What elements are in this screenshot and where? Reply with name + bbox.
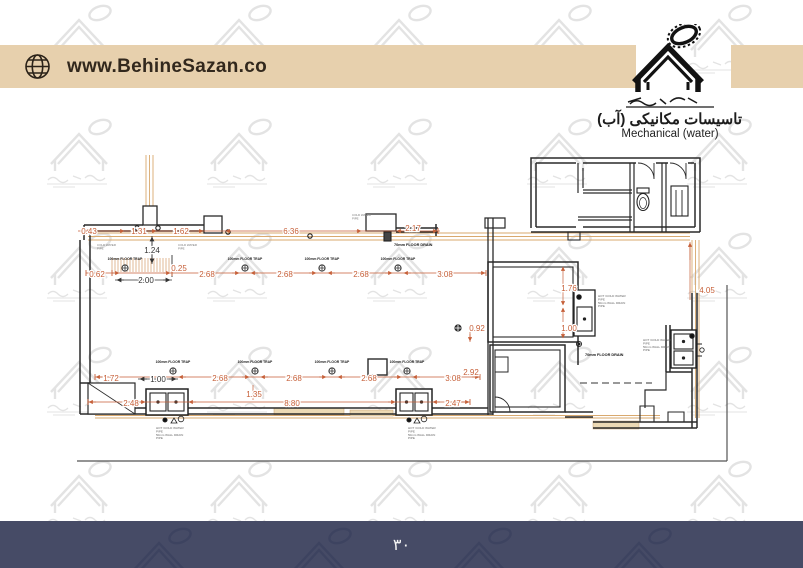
dim: 1.00: [150, 375, 166, 384]
logo-block: تاسیسات مکانیکی (آب) Mechanical (water): [598, 24, 742, 140]
dim: 3.08: [445, 374, 461, 383]
shower-stall-icon: [671, 186, 688, 216]
dim: 1.00: [561, 324, 577, 333]
dim: 8.80: [284, 399, 300, 408]
dim: 2.68: [353, 270, 369, 279]
dim: 2.92: [463, 368, 479, 377]
dim: 2.48: [123, 399, 139, 408]
dim: 3.08: [437, 270, 453, 279]
floor-trap-label: 100mm FLOOR TRAP: [108, 257, 143, 261]
footer: ٣٠: [0, 521, 803, 568]
wash-basin: [574, 290, 595, 347]
dimension-texts: 0.43 1.31 1.62 6.36 2.17 1.24 2.00 1.00 …: [81, 224, 715, 408]
floor-trap-label: 100mm FLOOR TRAP: [238, 360, 273, 364]
floor-drain-label: 70mm FLOOR DRAIN: [585, 353, 624, 357]
annotation: HOT /COLD WATER PIPE 50mm WALL DRAIN PIP…: [598, 294, 626, 308]
floor-drain-label: 70mm FLOOR DRAIN: [394, 243, 433, 247]
page-number: ٣٠: [0, 521, 803, 568]
dim: 2.68: [212, 374, 228, 383]
dim: 0.92: [469, 324, 485, 333]
dim: 0.25: [171, 264, 187, 273]
dim: 1.62: [173, 227, 189, 236]
water-pipes: [88, 155, 699, 418]
annotation: HOT /COLD WATER PIPE 50mm WALL DRAIN PIP…: [156, 426, 184, 440]
cold-water-label: PIPE: [178, 246, 185, 250]
dim: 2.68: [361, 374, 377, 383]
signature-icon: [626, 98, 714, 107]
dim: 6.36: [283, 227, 299, 236]
dim: 4.05: [699, 286, 715, 295]
dim: 1.35: [246, 390, 262, 399]
annotation: HOT /COLD WATER PIPE 50mm WALL DRAIN PIP…: [408, 426, 436, 440]
floor-trap-labels: 100mm FLOOR TRAP 100mm FLOOR TRAP 100mm …: [108, 243, 624, 364]
header-banner: www.BehineSazan.co: [0, 45, 636, 88]
dim: 2.68: [286, 374, 302, 383]
dimension-lines: [78, 228, 690, 405]
dim: 2.68: [277, 270, 293, 279]
dim: 2.17: [405, 224, 421, 233]
dim: 1.72: [103, 374, 119, 383]
dim: 0.62: [89, 270, 105, 279]
house-logo-icon: [620, 24, 720, 108]
page-title-fa: تاسیسات مکانیکی (آب): [598, 110, 742, 128]
page-title-en: Mechanical (water): [598, 128, 742, 140]
toilet-icon: [637, 188, 649, 211]
page: www.BehineSazan.co تاسیسات مکانیکی (آب) …: [0, 0, 803, 568]
floor-drain-1: [384, 232, 391, 241]
dim: 1.24: [144, 246, 160, 255]
walls: [80, 158, 700, 428]
globe-icon: [24, 53, 51, 80]
annotation: HOT /COLD WATER PIPE 50mm WALL DRAIN PIP…: [643, 338, 671, 352]
dim: 1.76: [561, 284, 577, 293]
dim: 1.31: [131, 227, 147, 236]
floor-trap-label: 100mm FLOOR TRAP: [315, 360, 350, 364]
floor-trap-label: 100mm FLOOR TRAP: [381, 257, 416, 261]
dim: 2.47: [445, 399, 461, 408]
floor-trap-label: 100mm FLOOR TRAP: [228, 257, 263, 261]
floor-trap-label: 100mm FLOOR TRAP: [156, 360, 191, 364]
website-url: www.BehineSazan.co: [67, 56, 267, 78]
floor-trap-label: 100mm FLOOR TRAP: [305, 257, 340, 261]
cold-water-label: PIPE: [352, 216, 359, 220]
cold-water-label: PIPE: [97, 246, 104, 250]
floor-trap-label: 100mm FLOOR TRAP: [390, 360, 425, 364]
dim: 0.43: [81, 227, 97, 236]
dim: 2.68: [199, 270, 215, 279]
dim: 2.00: [138, 276, 154, 285]
floor-traps: [122, 265, 461, 374]
